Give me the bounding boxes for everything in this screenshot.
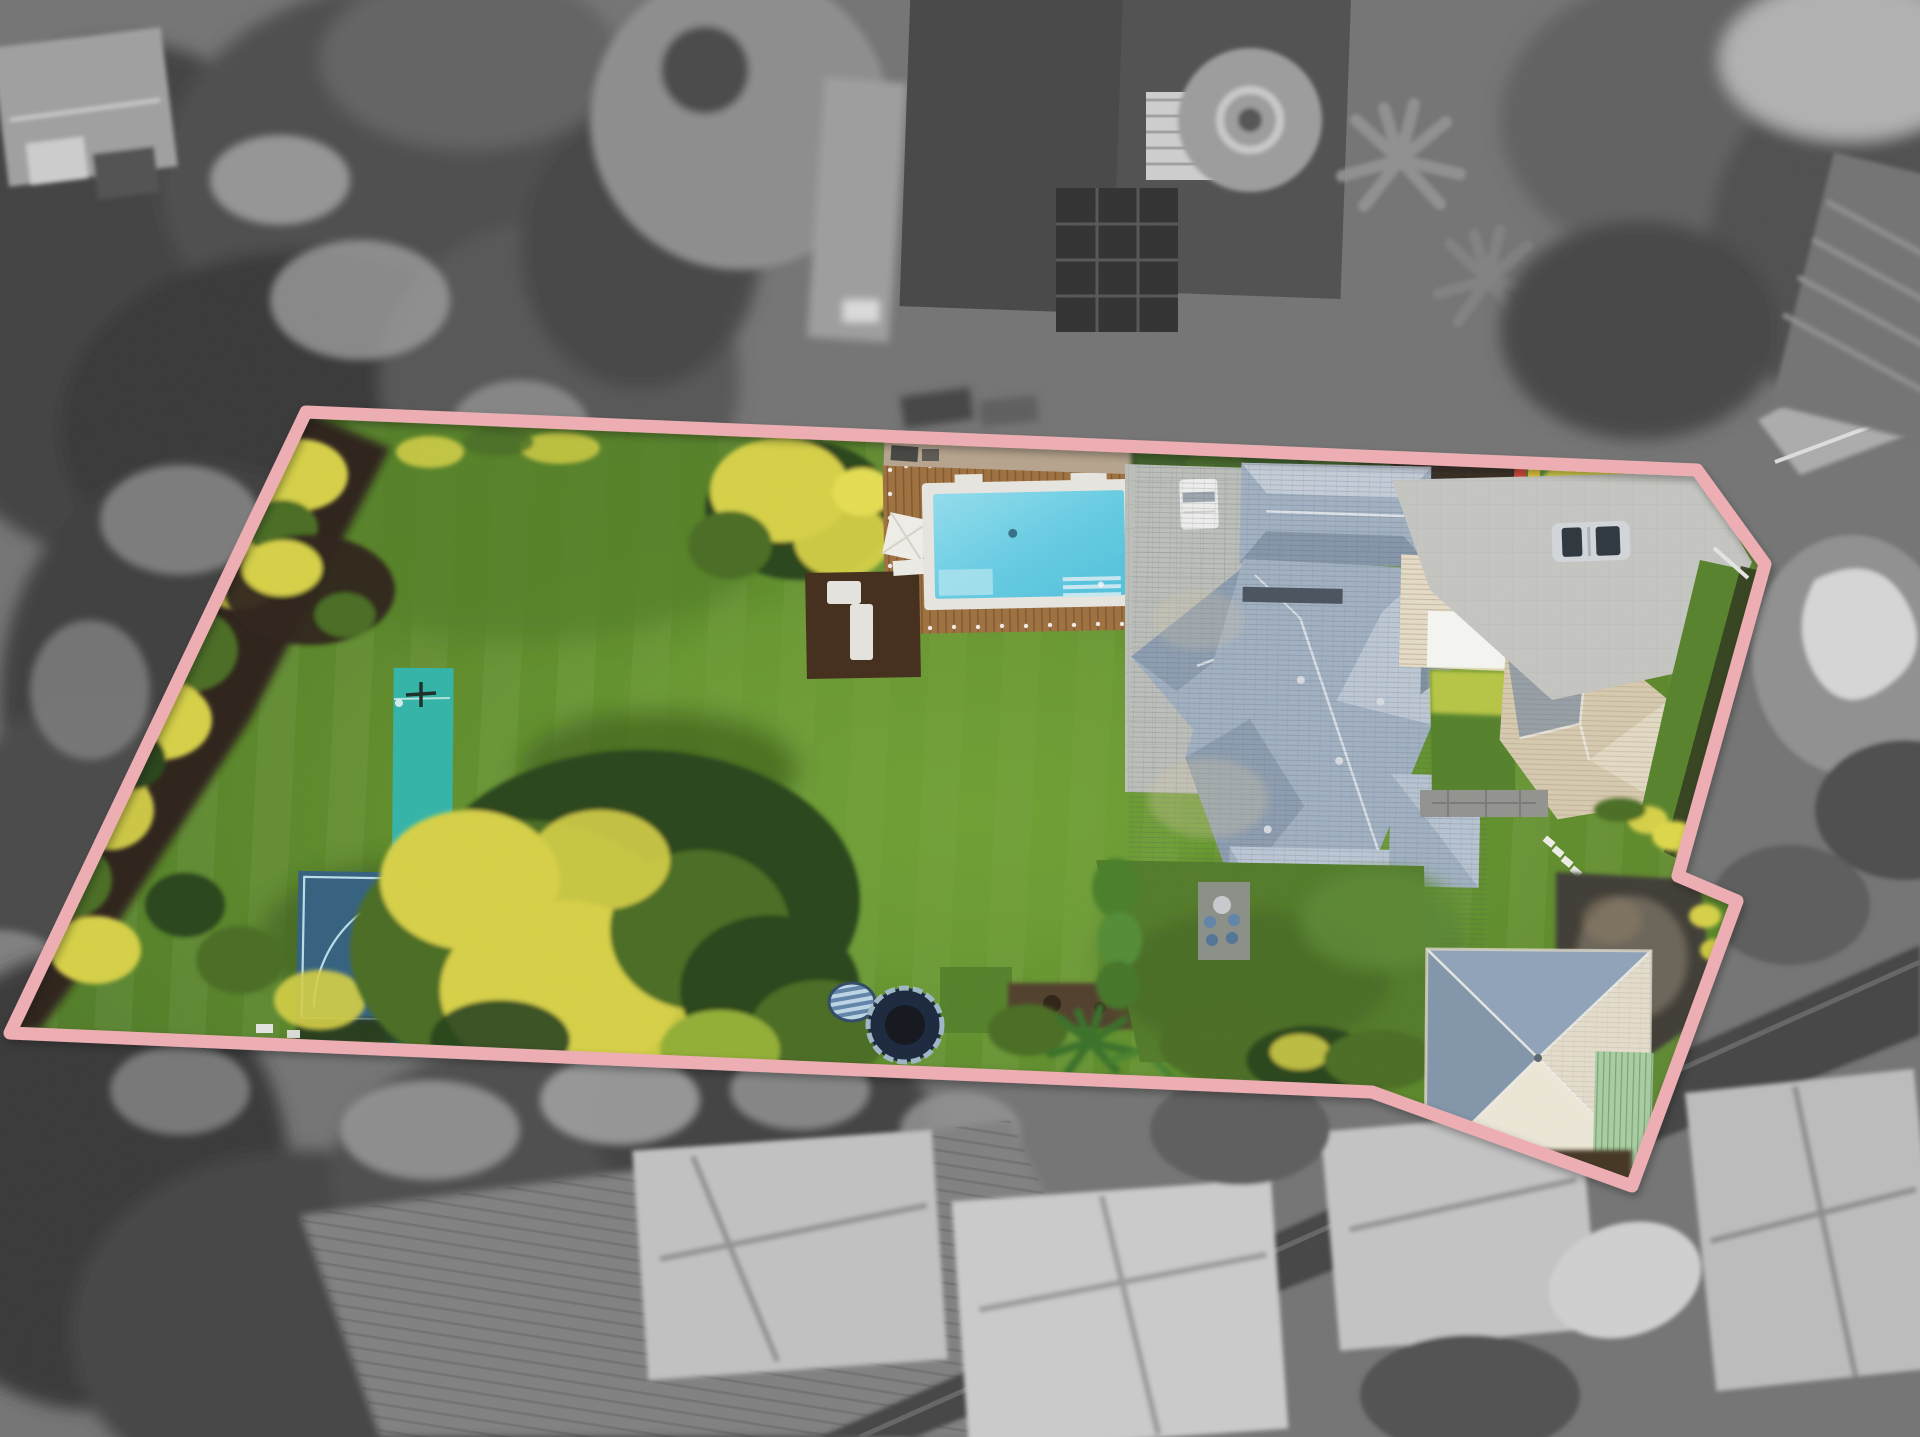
aerial-photo-canvas	[0, 0, 1920, 1437]
aerial-photo	[0, 0, 1920, 1437]
photo-grain-overlay	[0, 0, 1920, 1437]
